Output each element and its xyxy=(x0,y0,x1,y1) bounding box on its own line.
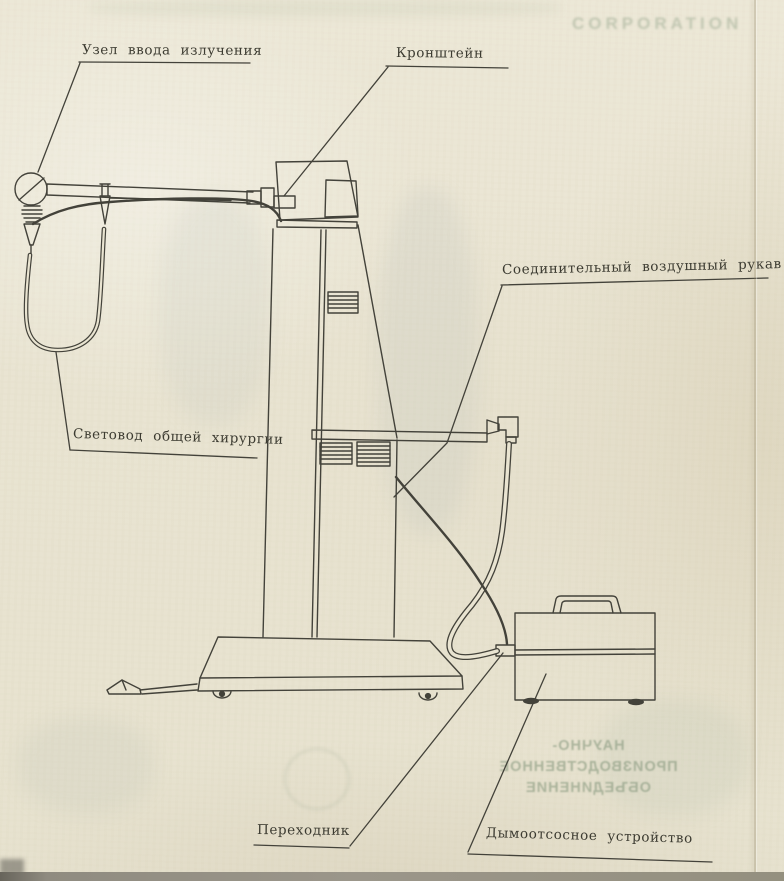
evacuator-seam xyxy=(515,649,655,655)
stand-head-panel xyxy=(325,180,358,217)
evacuator-foot-right xyxy=(628,699,644,705)
underline-svetovod xyxy=(70,450,257,458)
vent-grille-upper xyxy=(328,292,358,313)
fiber-hanger xyxy=(100,184,110,224)
column-inner-edge-b xyxy=(317,230,326,637)
smoke-evacuator xyxy=(396,417,655,705)
underline-soedinitelny xyxy=(501,278,768,285)
underline-perekhodnik xyxy=(254,845,349,848)
shelf xyxy=(312,430,487,442)
foot-pedal xyxy=(107,680,197,694)
vent-grille-lower-left xyxy=(320,443,352,464)
light-guide-loop xyxy=(26,229,104,350)
leader-soedinitelny xyxy=(394,286,502,497)
label-leader-lines xyxy=(38,62,768,862)
base-top xyxy=(200,637,462,678)
leader-kronshtein xyxy=(284,67,388,196)
leader-perekhodnik xyxy=(350,653,503,846)
column-right-taper xyxy=(358,225,397,438)
underline-uzel xyxy=(79,62,250,63)
vent-grille-lower-right xyxy=(357,442,390,466)
caster-right-pin xyxy=(426,694,431,699)
stand-head-band xyxy=(277,220,357,228)
underline-kronshtein xyxy=(386,66,508,68)
caster-left-pin xyxy=(220,692,225,697)
leader-uzel xyxy=(38,63,80,172)
label-perekhodnik: Переходник xyxy=(257,822,350,839)
power-cable xyxy=(396,477,507,644)
suction-nozzle xyxy=(487,417,518,443)
label-uzel-vvoda: Узел ввода излучения xyxy=(82,42,262,59)
column-right-edge xyxy=(394,440,397,637)
evacuator-foot-left xyxy=(523,698,539,704)
column-inner-edge-a xyxy=(312,230,321,637)
scanned-page: CORPORATION НАУЧНО- ПРОИЗВОДСТВЕННОЕ ОБЪ… xyxy=(0,0,784,881)
underline-dymootsos xyxy=(468,854,712,862)
evacuator-handle-inner xyxy=(560,601,613,613)
evacuator-box xyxy=(515,613,655,700)
label-kronshtein: Кронштейн xyxy=(396,45,484,62)
knob-highlight xyxy=(19,178,44,200)
leader-svetovod xyxy=(56,352,70,450)
bracket xyxy=(274,196,295,208)
radiation-input-unit xyxy=(22,206,42,257)
arm-assembly xyxy=(15,173,295,257)
